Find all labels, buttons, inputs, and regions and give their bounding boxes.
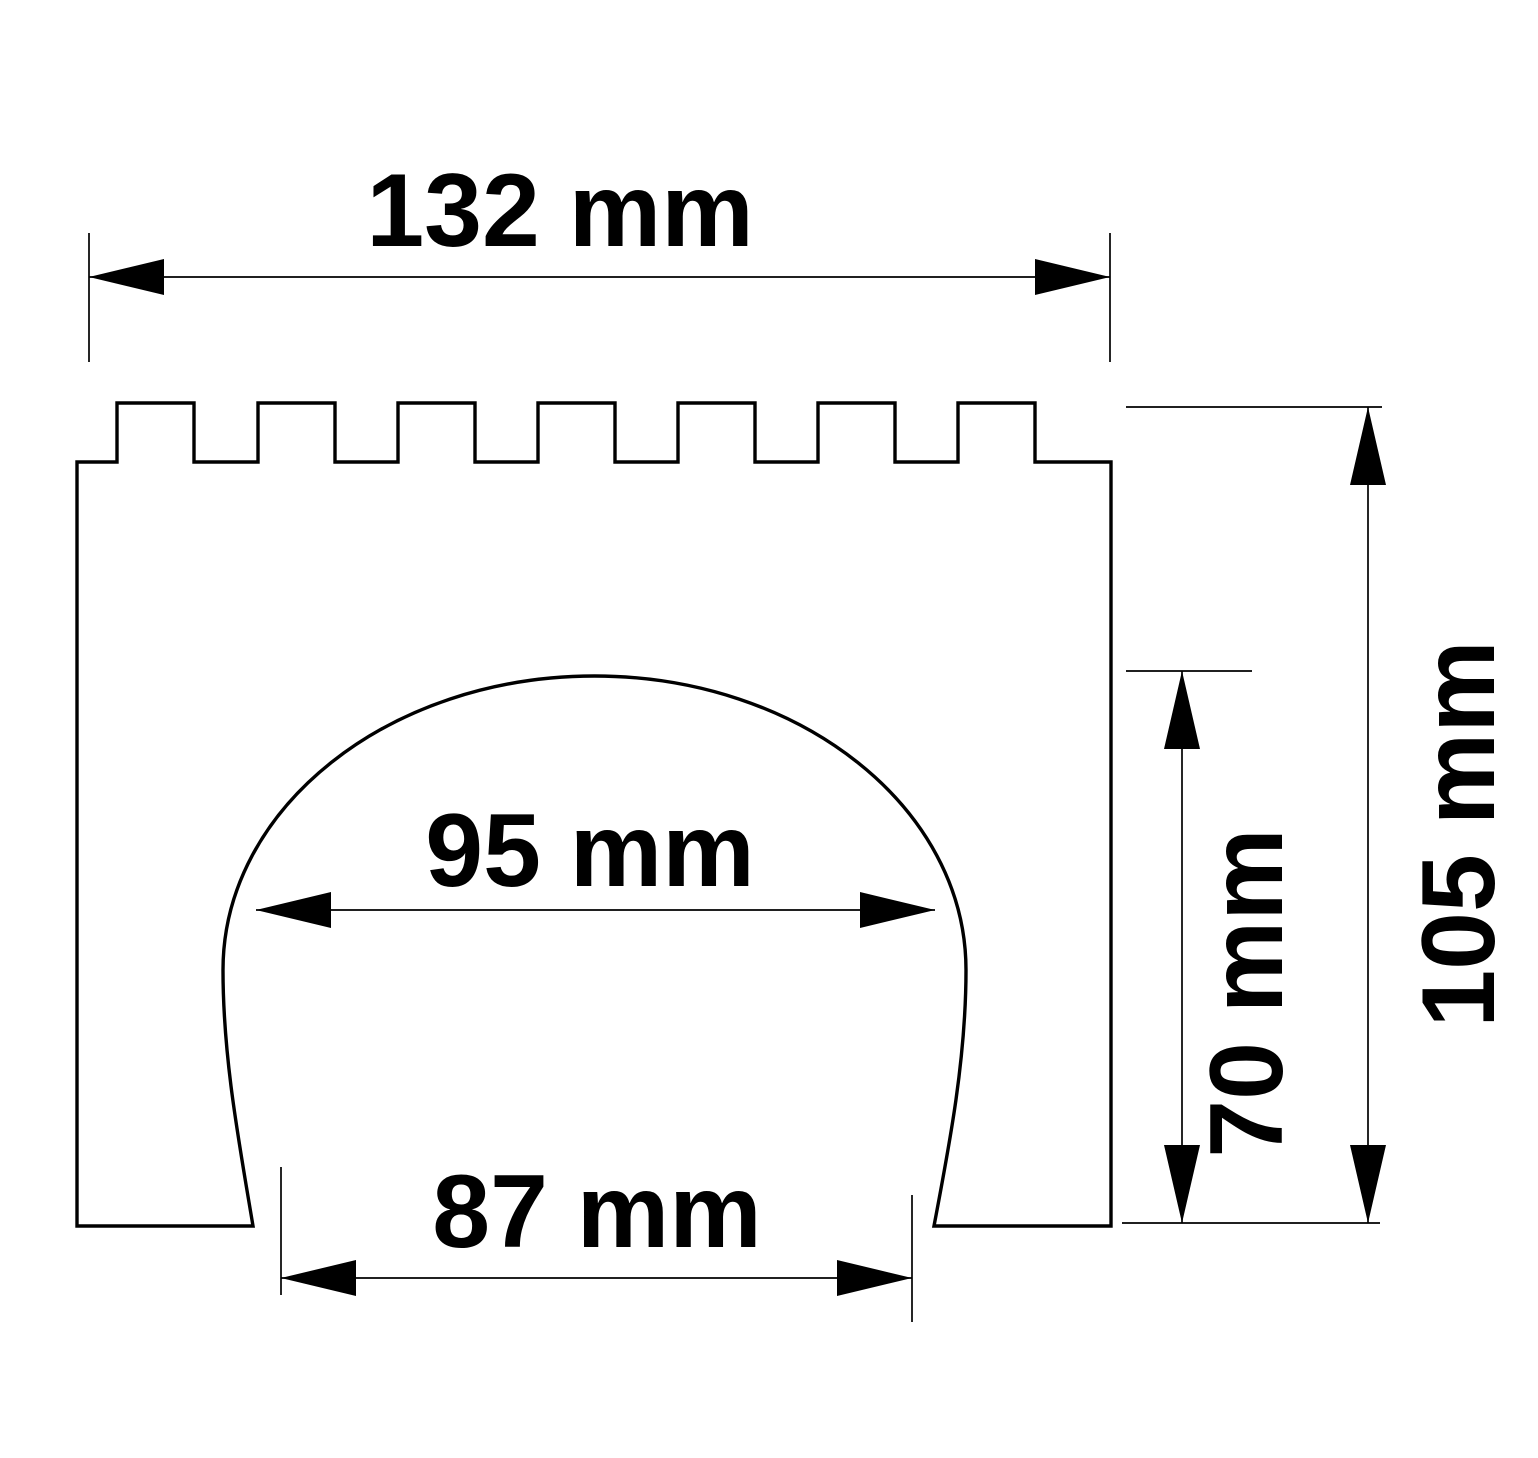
dim-label-arch-height: 70 mm <box>1195 828 1299 1158</box>
arrowhead-right-icon <box>860 892 935 928</box>
arrowhead-right-icon <box>1035 259 1110 295</box>
arrowhead-down-icon <box>1350 1145 1386 1223</box>
arrowhead-left-icon <box>89 259 164 295</box>
dim-label-arch-width: 95 mm <box>425 799 755 903</box>
arrowhead-up-icon <box>1350 407 1386 485</box>
technical-drawing-canvas: 132 mm 95 mm 87 mm 70 mm 105 mm <box>0 0 1538 1458</box>
arrowhead-up-icon <box>1164 671 1200 749</box>
arrowhead-right-icon <box>837 1260 912 1296</box>
dim-label-total-width: 132 mm <box>366 159 753 263</box>
dim-label-base-opening-width: 87 mm <box>432 1160 762 1264</box>
arrowhead-left-icon <box>281 1260 356 1296</box>
arrowhead-left-icon <box>256 892 331 928</box>
dim-label-total-height: 105 mm <box>1407 640 1511 1027</box>
drawing-svg <box>0 0 1538 1458</box>
